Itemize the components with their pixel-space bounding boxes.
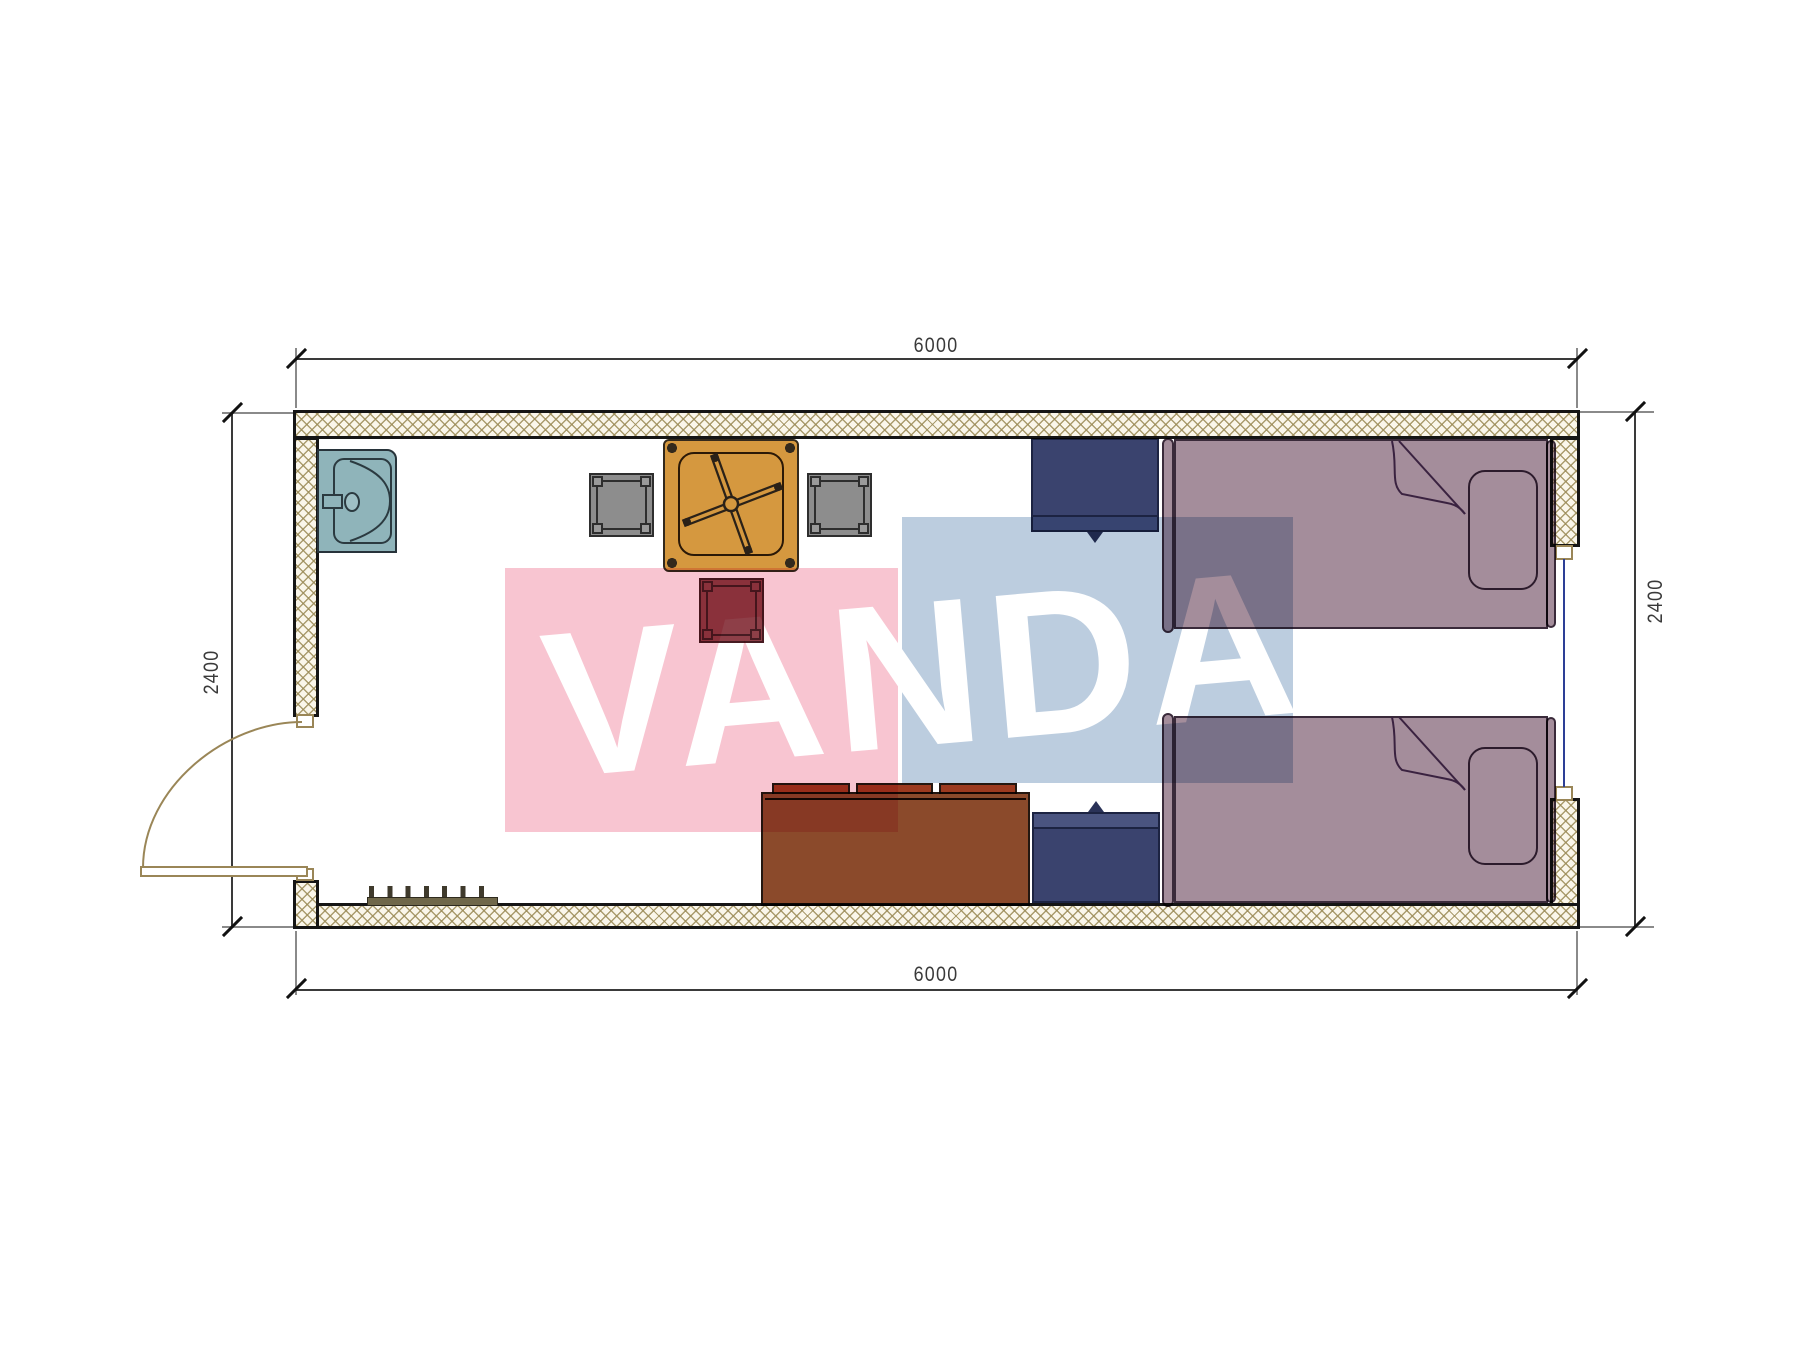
window-frame-icon <box>1555 786 1573 801</box>
extension-line <box>1580 411 1654 413</box>
bed2-footboard <box>1546 717 1556 903</box>
extension-line <box>1580 926 1654 928</box>
stool-leg <box>858 523 869 534</box>
stool-leg <box>750 629 761 640</box>
cabinet-drawer-strip <box>1033 515 1157 530</box>
shoe-rack <box>367 897 498 906</box>
cabinet-handle-icon <box>1087 532 1103 543</box>
wall-bottom <box>315 903 1580 929</box>
dimension-line-top <box>296 358 1577 360</box>
floor-plan-canvas: 6000 6000 2400 2400 VANDA <box>0 0 1800 1350</box>
wall-top <box>293 410 1580 439</box>
stool-leg <box>702 629 713 640</box>
dimension-label-bottom: 6000 <box>868 963 1004 987</box>
stool-bottom <box>699 578 764 643</box>
cabinet-handle-icon <box>1088 801 1104 812</box>
sofa <box>761 792 1030 906</box>
dimension-label-top: 6000 <box>868 334 1004 358</box>
dimension-label-right: 2400 <box>1644 533 1668 669</box>
bed1-pillow <box>1468 470 1538 590</box>
window-frame-icon <box>1555 545 1573 560</box>
stool-leg <box>810 523 821 534</box>
sink <box>317 449 397 553</box>
cabinet-bottom <box>1032 812 1160 903</box>
floor-plan-page: { "watermark": { "text": "VANDA" }, "dim… <box>0 0 1800 1350</box>
stool-right <box>807 473 872 537</box>
stool-leg <box>592 523 603 534</box>
stool-leg <box>810 476 821 487</box>
shoe-rack-slats <box>369 886 497 897</box>
cabinet-drawer-strip <box>1034 814 1158 829</box>
stool-leg <box>640 476 651 487</box>
stool-leg <box>702 581 713 592</box>
cabinet-top <box>1031 438 1159 532</box>
dimension-label-left: 2400 <box>200 604 224 740</box>
table-top-outline <box>678 452 784 556</box>
bed1-footboard <box>1546 440 1556 628</box>
wall-stub-door <box>293 880 319 929</box>
bed2-pillow <box>1468 747 1538 865</box>
bed1-headboard <box>1162 438 1174 633</box>
wall-left <box>293 437 319 717</box>
stool-leg <box>592 476 603 487</box>
bed2-headboard <box>1162 713 1174 907</box>
dimension-line-bottom <box>296 989 1577 991</box>
stool-left <box>589 473 654 537</box>
sofa-back-line <box>765 798 1026 800</box>
door-swing-arc <box>143 722 302 868</box>
door-frame-icon <box>296 714 314 728</box>
dimension-line-left <box>231 413 233 927</box>
dimension-line-right <box>1634 412 1636 927</box>
door-leaf <box>140 866 308 877</box>
stool-leg <box>640 523 651 534</box>
stool-leg <box>858 476 869 487</box>
window-glass-line <box>1563 559 1565 787</box>
stool-leg <box>750 581 761 592</box>
